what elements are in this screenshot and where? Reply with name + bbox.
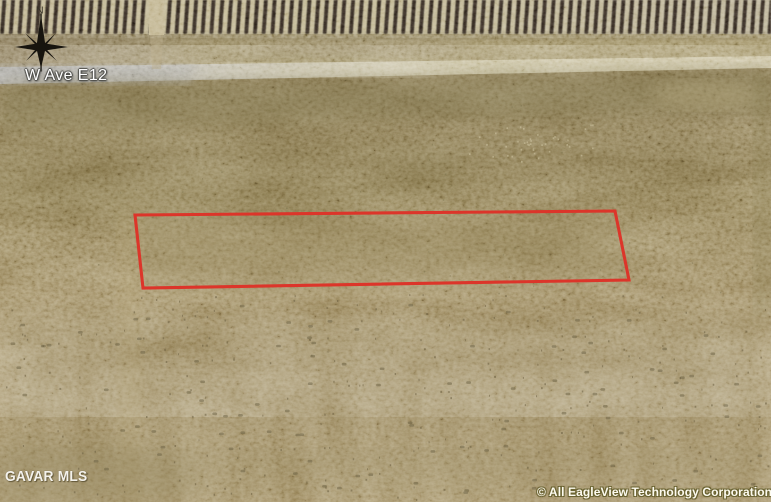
svg-text:N: N: [36, 5, 44, 17]
